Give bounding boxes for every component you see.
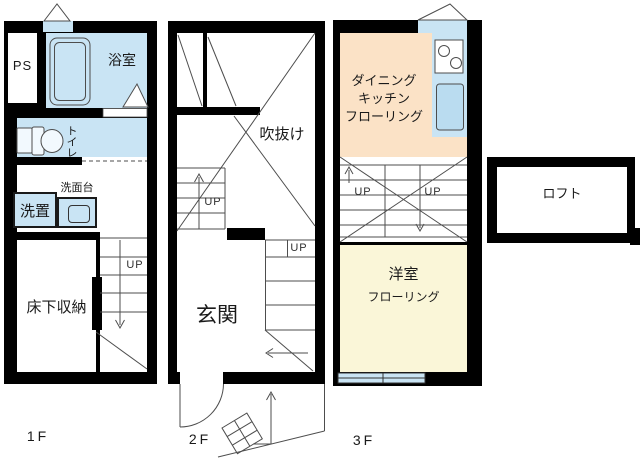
washstand-icon xyxy=(57,197,97,228)
entry-steps-icon xyxy=(222,413,262,454)
entrance-door-arc xyxy=(180,384,224,427)
entrance-door-opening xyxy=(180,372,223,384)
kitchen-vent-bumpout xyxy=(418,20,467,33)
toilet-label: トイレ xyxy=(65,119,76,163)
room-toilet xyxy=(17,118,147,157)
bath-label: 浴室 xyxy=(99,52,145,68)
floor1-staircase xyxy=(100,232,147,372)
loft-label: ロフト xyxy=(497,187,627,202)
floor3-label: 3F xyxy=(344,432,384,448)
stair-up-label-3f-right: UP xyxy=(419,186,447,199)
approach-arrow xyxy=(253,392,276,444)
approach-boundary xyxy=(218,384,325,457)
room-western xyxy=(340,245,467,372)
closet-front-wall xyxy=(177,107,260,115)
floor2-label: 2F xyxy=(180,431,220,447)
western-room-label: 洋室 xyxy=(340,266,467,283)
stair-up-label-2f-lower: UP xyxy=(199,196,227,209)
loft-wall-nub xyxy=(630,228,640,245)
stair-up-label-1f: UP xyxy=(121,259,149,272)
stair-up-label-2f-upper: UP xyxy=(285,242,313,255)
floor1-label: 1F xyxy=(18,428,58,444)
underfloor-storage-label: 床下収納 xyxy=(17,299,96,316)
laundry-space-box: 洗置 xyxy=(13,192,57,228)
roof-vent-icon xyxy=(44,4,70,21)
closet-divider-wall xyxy=(203,33,207,107)
washstand-label: 洗面台 xyxy=(54,182,100,195)
laundry-label: 洗置 xyxy=(20,200,50,221)
entrance-stair-wall xyxy=(227,228,265,240)
stair-up-label-3f-left: UP xyxy=(349,186,377,199)
western-room-flooring-label: フローリング xyxy=(340,291,467,305)
floor3-staircase xyxy=(340,157,467,242)
floor-plan: 洗置 xyxy=(0,0,640,462)
room-bath xyxy=(46,33,147,108)
entrance-label: 玄関 xyxy=(188,304,246,328)
pipe-space-label: PS xyxy=(8,59,37,74)
dining-kitchen-label: ダイニング キッチン フローリング xyxy=(341,72,427,126)
bath-vent-bumpout xyxy=(43,21,73,32)
roof-vent-icon xyxy=(418,4,467,20)
toilet-partition-gap xyxy=(82,157,147,165)
washbasin-icon xyxy=(68,205,90,223)
kitchen-counter xyxy=(432,33,467,137)
atrium-void-label: 吹抜け xyxy=(248,126,316,143)
